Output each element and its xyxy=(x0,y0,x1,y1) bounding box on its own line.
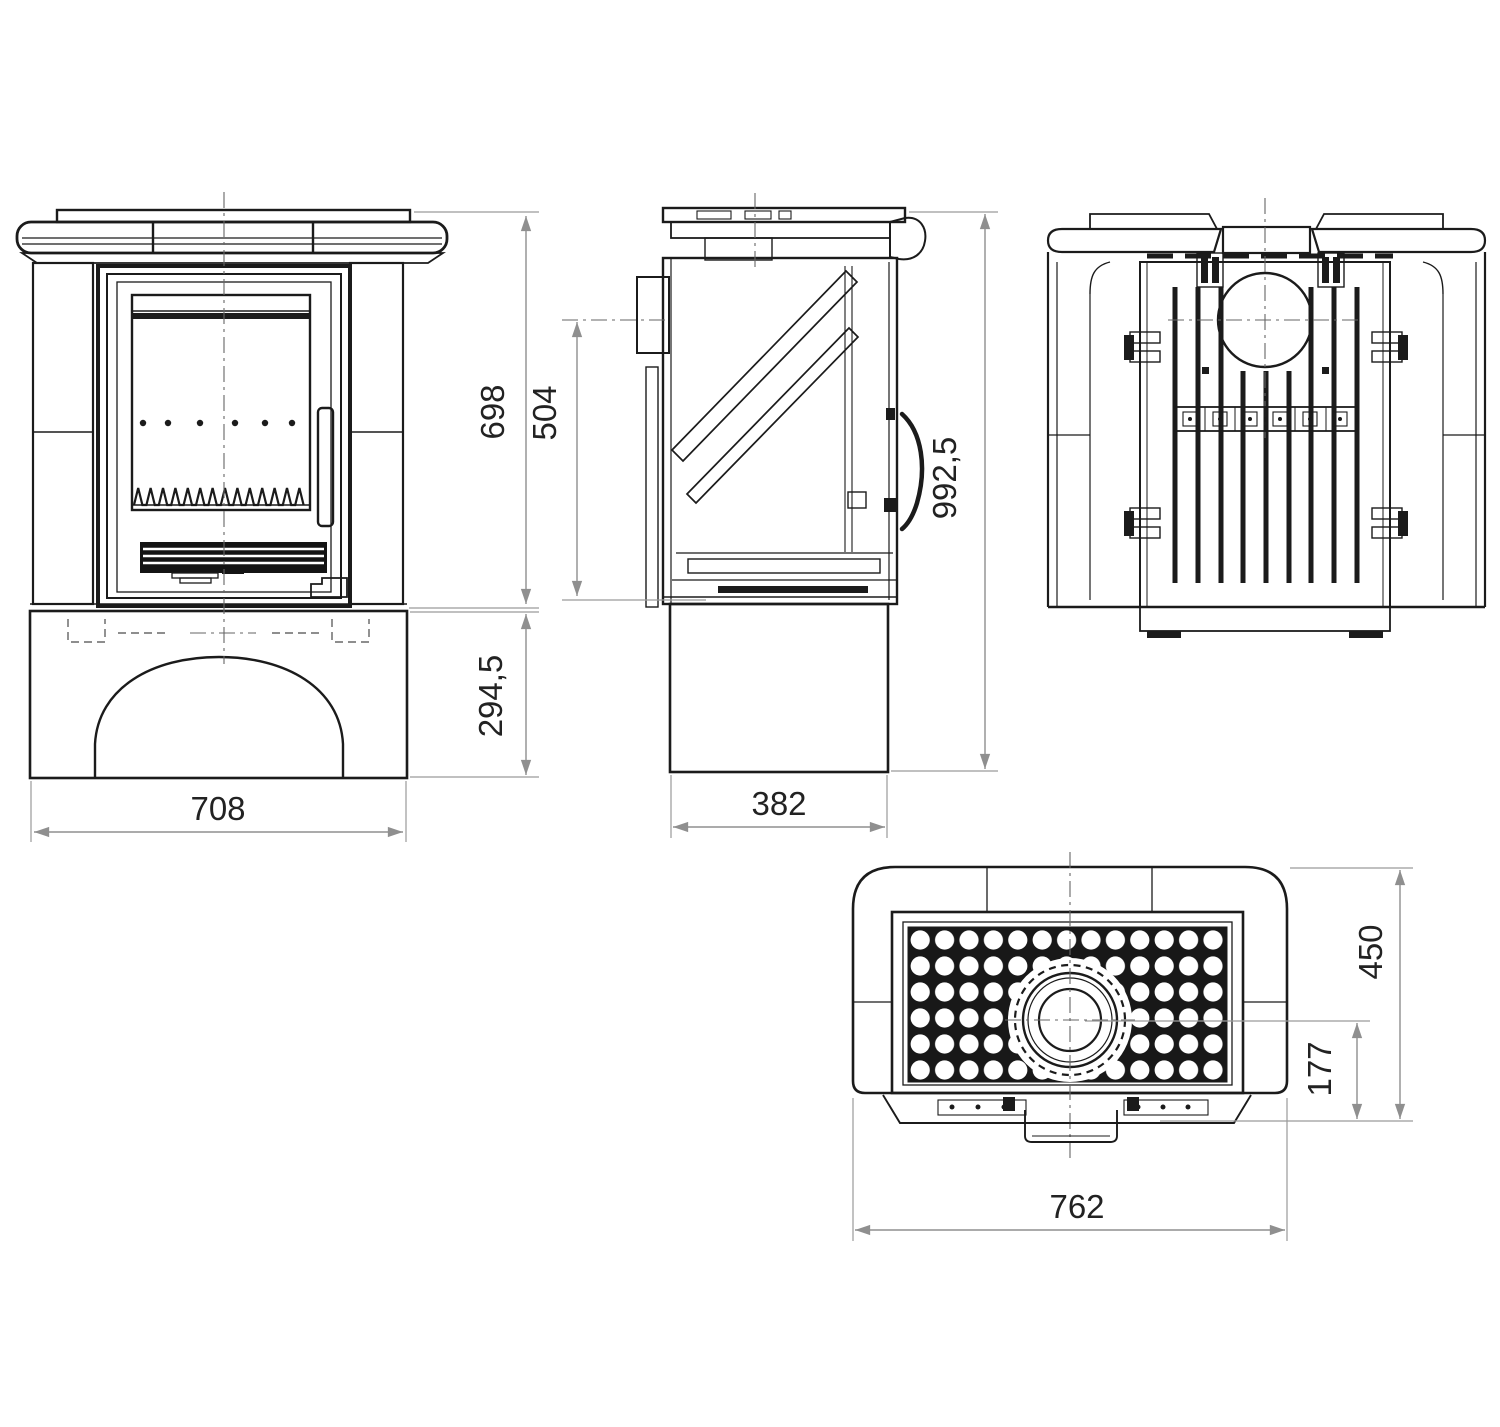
dim-top-width-label: 762 xyxy=(1049,1188,1104,1225)
side-pedestal xyxy=(670,604,888,772)
side-top-plate xyxy=(663,208,905,222)
base-arch xyxy=(95,657,343,778)
flame-baffle-zigzag xyxy=(134,488,304,505)
dim-side-total-height: 992,5 xyxy=(891,212,998,771)
rear-flue-outlet xyxy=(637,277,669,353)
ash-drawer xyxy=(688,559,880,573)
technical-drawing-page: 698 294,5 708 xyxy=(0,0,1500,1427)
side-body xyxy=(663,258,897,604)
rear-foot-left xyxy=(1147,631,1181,638)
dim-side-depth-label: 382 xyxy=(751,785,806,822)
top-rear-tab xyxy=(1025,1110,1117,1142)
dim-front-body-height: 698 xyxy=(409,212,539,608)
dim-top-depth-label: 450 xyxy=(1352,924,1389,979)
side-cornice-nose xyxy=(890,218,925,260)
rear-heat-shield xyxy=(646,367,658,607)
dim-front-base-height: 294,5 xyxy=(410,612,539,777)
rear-foot-right xyxy=(1349,631,1383,638)
dim-side-flue-height-label: 504 xyxy=(526,385,563,440)
rear-center-block xyxy=(1223,227,1310,253)
rear-cornice-right xyxy=(1312,229,1485,252)
air-holes xyxy=(140,420,295,426)
side-door-handle xyxy=(902,414,922,529)
dim-side-depth: 382 xyxy=(671,775,887,838)
top-view xyxy=(853,852,1287,1158)
front-base xyxy=(30,611,407,778)
hidden-foot-left xyxy=(68,619,105,642)
baffle-plate-lower xyxy=(687,328,858,503)
dim-side-flue-height: 504 xyxy=(526,320,706,600)
front-right-column xyxy=(350,263,403,604)
rear-cornice-left xyxy=(1048,229,1221,252)
front-cornice-bevel xyxy=(22,253,443,263)
rear-plinth xyxy=(1140,607,1390,631)
front-left-column xyxy=(33,263,93,604)
dim-front-base-height-label: 294,5 xyxy=(472,655,509,738)
rear-heat-fins xyxy=(1173,287,1360,583)
dim-front-width: 708 xyxy=(31,781,406,842)
dim-front-body-height-label: 698 xyxy=(474,384,511,439)
front-top-plate xyxy=(57,210,410,222)
dim-side-total-height-label: 992,5 xyxy=(926,437,963,520)
dim-top-flue-offset-label: 177 xyxy=(1301,1041,1338,1096)
dim-front-width-label: 708 xyxy=(190,790,245,827)
door-glass xyxy=(132,295,310,510)
side-view xyxy=(637,193,925,772)
rear-view xyxy=(1048,198,1485,638)
front-view xyxy=(17,192,447,778)
hidden-foot-right xyxy=(332,619,369,642)
stove-dimension-drawing: 698 294,5 708 xyxy=(0,0,1500,1427)
